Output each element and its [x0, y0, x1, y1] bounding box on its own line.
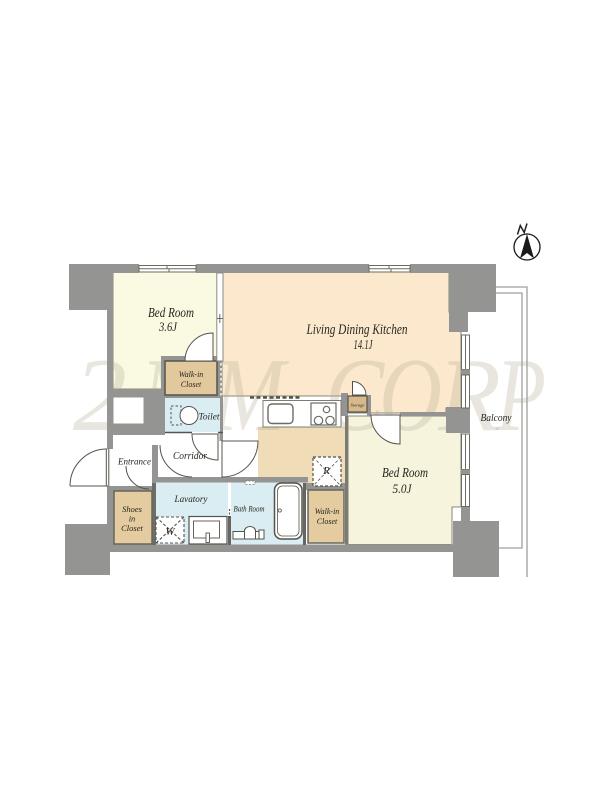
svg-text:Bed Room: Bed Room	[382, 465, 428, 480]
svg-text:Bath Room: Bath Room	[234, 505, 265, 514]
svg-text:Entrance: Entrance	[117, 458, 151, 468]
svg-text:3.6J: 3.6J	[158, 319, 178, 334]
svg-text:Walk-in: Walk-in	[315, 507, 340, 516]
svg-text:Closet: Closet	[121, 523, 143, 533]
svg-text:Lavatory: Lavatory	[174, 495, 209, 505]
svg-text:Shoes: Shoes	[122, 504, 143, 514]
svg-text:Storage: Storage	[351, 403, 365, 408]
svg-text:Corridor: Corridor	[173, 451, 207, 462]
svg-text:Living Dining Kitchen: Living Dining Kitchen	[306, 322, 408, 338]
svg-text:Closet: Closet	[181, 380, 202, 389]
svg-text:P: P	[495, 336, 546, 453]
svg-text:Closet: Closet	[317, 517, 338, 526]
svg-text:Balcony: Balcony	[481, 413, 513, 424]
svg-text:Walk-in: Walk-in	[179, 370, 204, 379]
svg-text:5.0J: 5.0J	[393, 481, 413, 496]
svg-text:W: W	[165, 526, 175, 538]
svg-text:Toilet: Toilet	[199, 413, 220, 423]
svg-text:in: in	[129, 514, 136, 524]
svg-text:14.1J: 14.1J	[354, 338, 373, 353]
svg-text:Bed Room: Bed Room	[148, 305, 194, 320]
svg-text:R: R	[322, 466, 330, 477]
